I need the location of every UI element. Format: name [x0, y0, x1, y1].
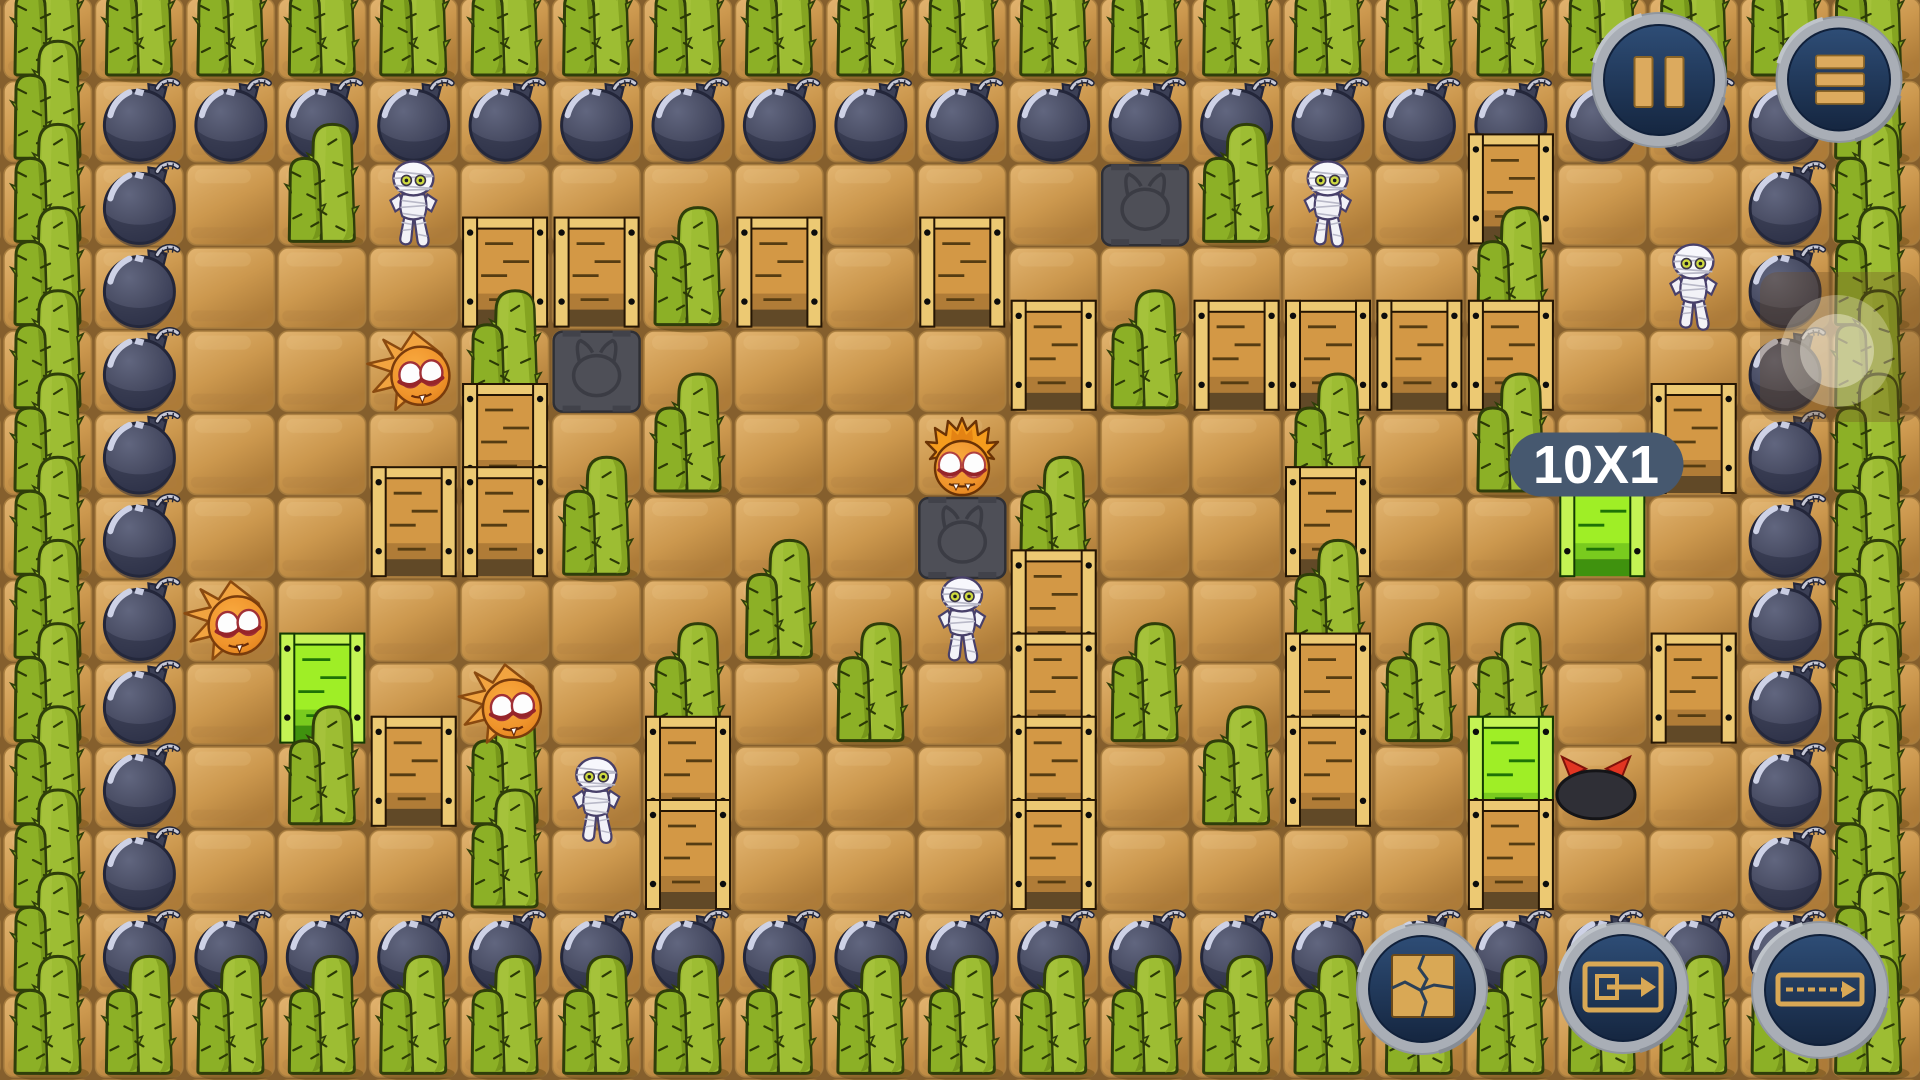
svg-text:10X1: 10X1 [1533, 435, 1659, 495]
